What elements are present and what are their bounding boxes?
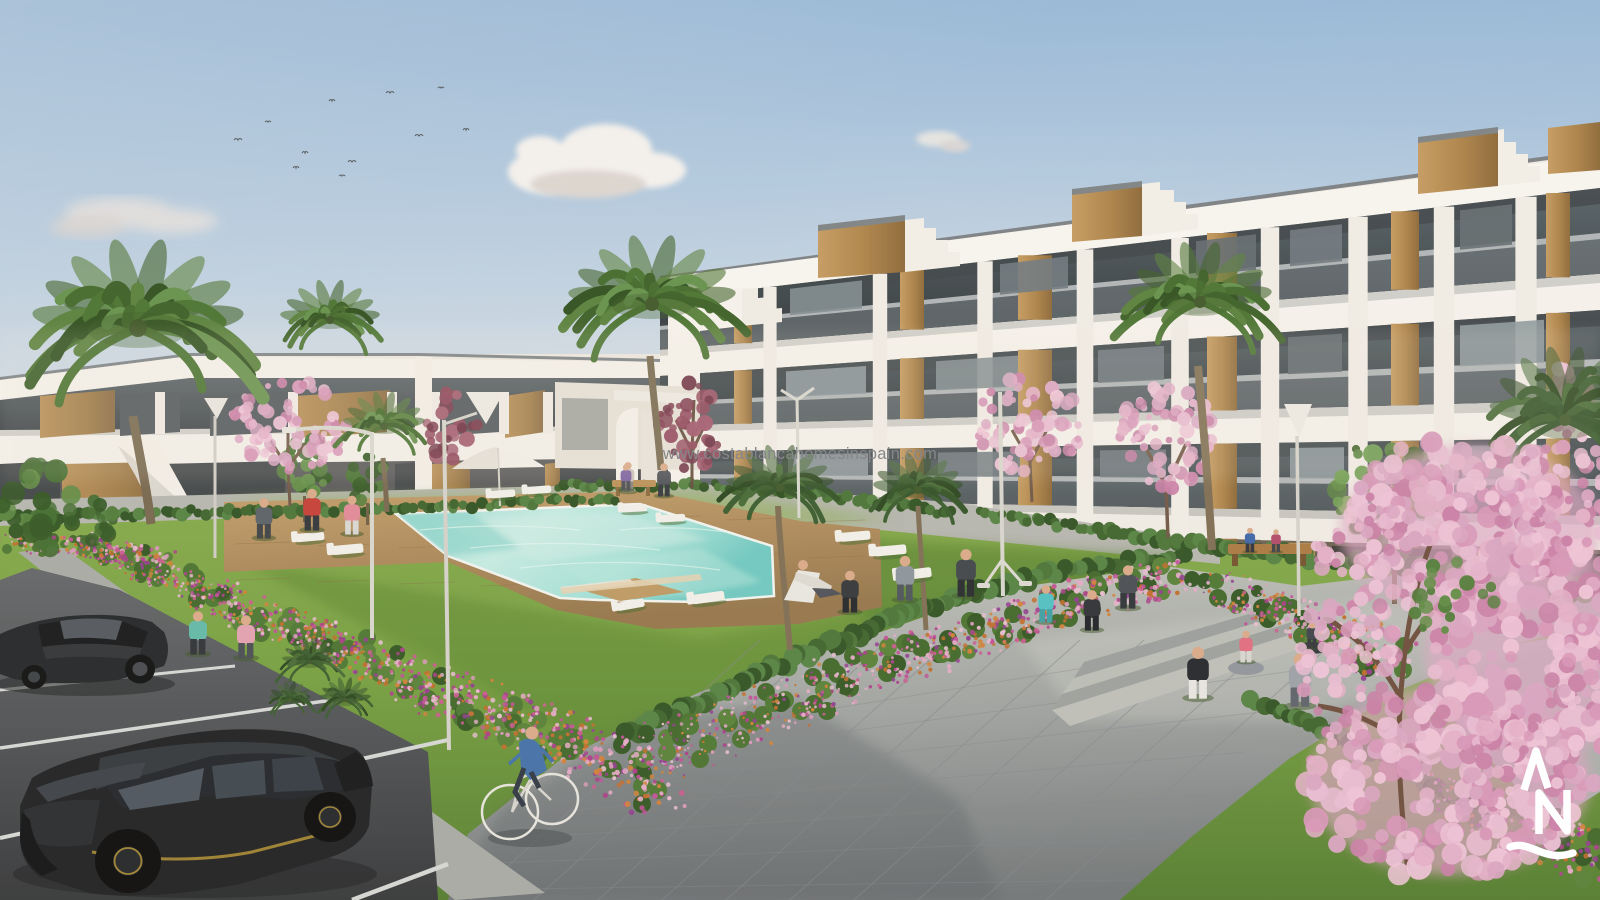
- svg-text:www.costablancahomesinspain.co: www.costablancahomesinspain.com: [662, 445, 937, 463]
